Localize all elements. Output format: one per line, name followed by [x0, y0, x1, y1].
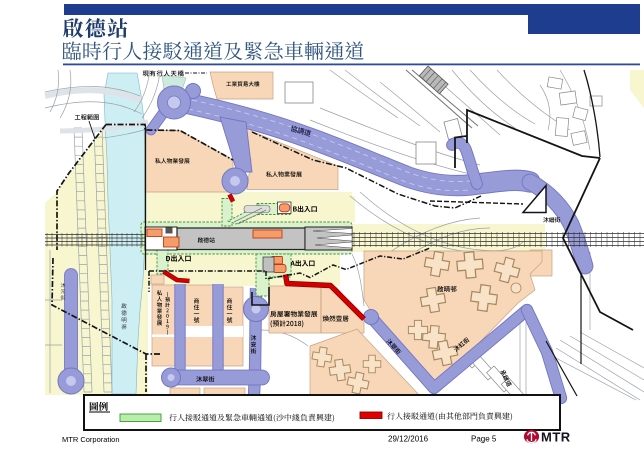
- svg-text:Page 5: Page 5: [471, 435, 497, 444]
- svg-text:MTR: MTR: [541, 430, 571, 445]
- svg-text:MTR Corporation: MTR Corporation: [62, 435, 120, 444]
- svg-text:29/12/2016: 29/12/2016: [388, 435, 429, 444]
